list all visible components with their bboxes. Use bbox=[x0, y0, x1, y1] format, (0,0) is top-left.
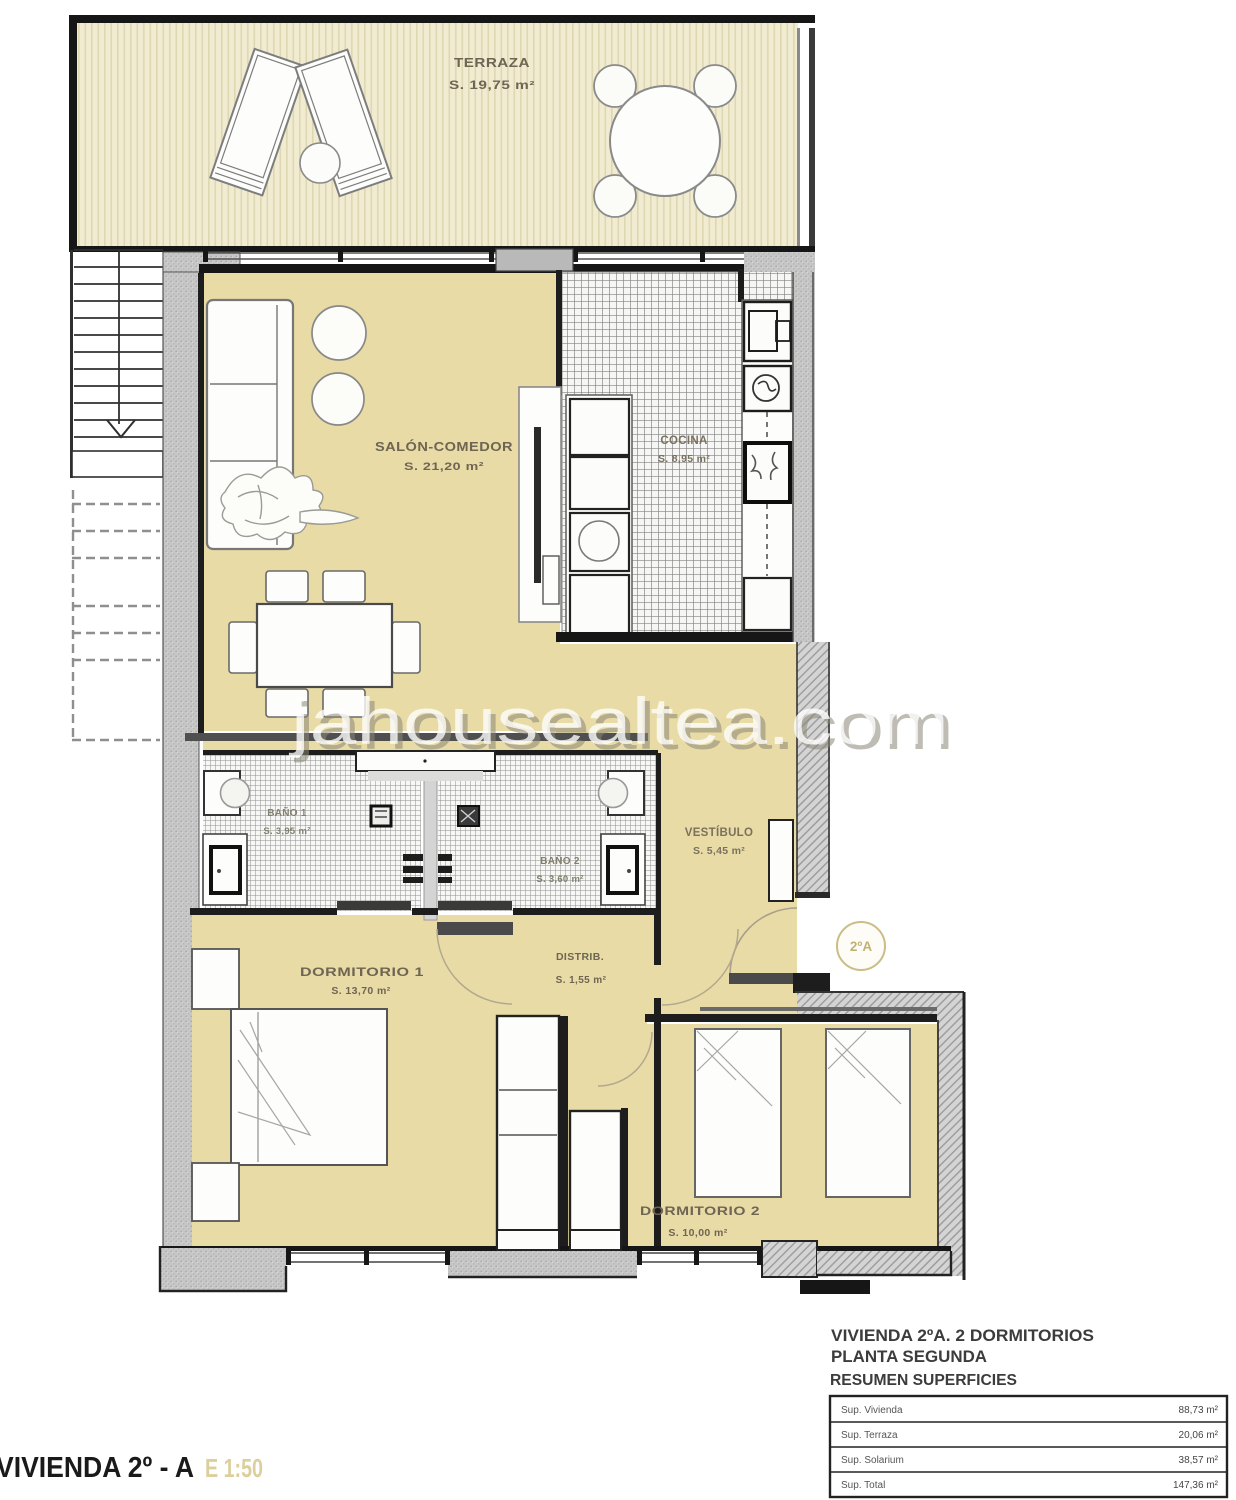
svg-text:Sup. Vivienda: Sup. Vivienda bbox=[841, 1405, 903, 1416]
svg-text:S. 5,45 m²: S. 5,45 m² bbox=[693, 845, 745, 857]
svg-text:DORMITORIO 2: DORMITORIO 2 bbox=[640, 1204, 760, 1218]
svg-text:DORMITORIO 1: DORMITORIO 1 bbox=[300, 965, 424, 979]
svg-text:BAÑO 1: BAÑO 1 bbox=[267, 806, 307, 819]
svg-text:BAÑO 2: BAÑO 2 bbox=[540, 854, 580, 867]
svg-text:Sup. Total: Sup. Total bbox=[841, 1480, 885, 1491]
svg-text:S. 1,55 m²: S. 1,55 m² bbox=[556, 975, 607, 986]
svg-text:RESUMEN SUPERFICIES: RESUMEN SUPERFICIES bbox=[830, 1372, 1017, 1389]
svg-text:S. 3,95 m²: S. 3,95 m² bbox=[263, 826, 310, 837]
svg-text:Sup. Solarium: Sup. Solarium bbox=[841, 1455, 904, 1466]
svg-text:VIVIENDA 2ºA. 2 DORMITORIOS: VIVIENDA 2ºA. 2 DORMITORIOS bbox=[831, 1327, 1094, 1345]
svg-text:S. 13,70 m²: S. 13,70 m² bbox=[331, 985, 390, 997]
svg-text:VIVIENDA 2º - A: VIVIENDA 2º - A bbox=[0, 1452, 194, 1484]
svg-text:147,36 m²: 147,36 m² bbox=[1173, 1480, 1219, 1491]
svg-text:S. 3,60 m²: S. 3,60 m² bbox=[536, 874, 583, 885]
svg-text:SALÓN-COMEDOR: SALÓN-COMEDOR bbox=[375, 439, 513, 454]
svg-text:S. 21,20 m²: S. 21,20 m² bbox=[404, 461, 484, 473]
svg-text:Sup. Terraza: Sup. Terraza bbox=[841, 1430, 898, 1441]
svg-text:COCINA: COCINA bbox=[660, 435, 707, 447]
svg-text:E 1:50: E 1:50 bbox=[205, 1453, 263, 1483]
svg-text:2ºA: 2ºA bbox=[850, 939, 872, 954]
svg-text:VESTÍBULO: VESTÍBULO bbox=[685, 826, 754, 839]
svg-text:S. 19,75 m²: S. 19,75 m² bbox=[449, 80, 535, 92]
svg-text:DISTRIB.: DISTRIB. bbox=[556, 951, 604, 963]
svg-text:PLANTA SEGUNDA: PLANTA SEGUNDA bbox=[831, 1348, 987, 1366]
svg-text:jahousealtea.com: jahousealtea.com bbox=[288, 684, 949, 758]
svg-text:S. 10,00 m²: S. 10,00 m² bbox=[668, 1227, 727, 1239]
svg-text:38,57 m²: 38,57 m² bbox=[1179, 1455, 1219, 1466]
svg-text:S. 8,95 m²: S. 8,95 m² bbox=[658, 453, 710, 465]
svg-text:TERRAZA: TERRAZA bbox=[454, 55, 530, 70]
svg-text:20,06 m²: 20,06 m² bbox=[1179, 1430, 1219, 1441]
svg-text:88,73 m²: 88,73 m² bbox=[1179, 1405, 1219, 1416]
